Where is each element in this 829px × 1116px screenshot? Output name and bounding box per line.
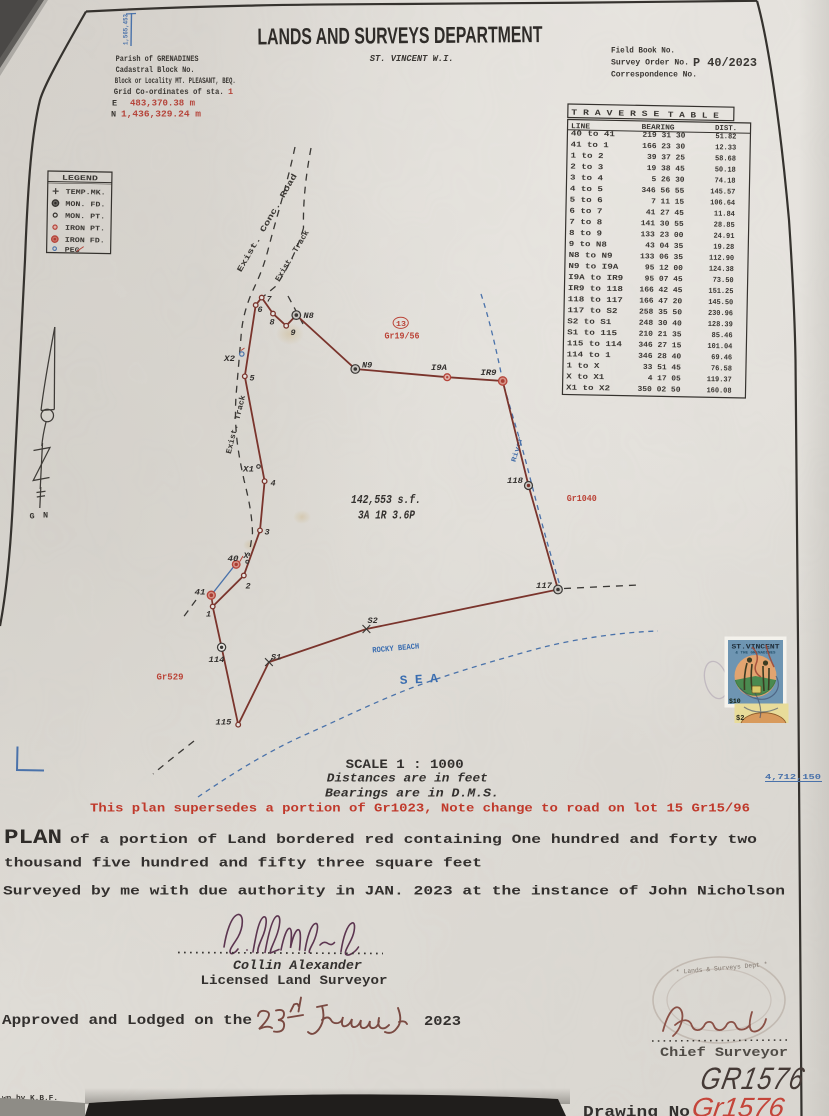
svg-text:SCALE 1 : 1000: SCALE 1 : 1000: [346, 757, 464, 772]
svg-text:74.18: 74.18: [714, 177, 736, 185]
svg-text:ST. VINCENT W.I.: ST. VINCENT W.I.: [370, 53, 454, 64]
svg-text:Distances are in feet: Distances are in feet: [327, 772, 488, 786]
svg-text:346 56 55: 346 56 55: [641, 187, 685, 196]
svg-text:9 to N8: 9 to N8: [569, 241, 608, 250]
svg-text:S1: S1: [271, 653, 281, 663]
svg-text:4,712,150: 4,712,150: [765, 774, 822, 782]
svg-text:119.37: 119.37: [707, 376, 732, 384]
svg-text:MON. FD.: MON. FD.: [65, 201, 105, 210]
svg-text:166 42 45: 166 42 45: [639, 286, 683, 295]
svg-text:350 02 50: 350 02 50: [637, 386, 681, 395]
svg-text:TEMP.MK.: TEMP.MK.: [66, 189, 106, 198]
svg-text:Block or Locality MT. PLEASANT: Block or Locality MT. PLEASANT, BEQ.: [115, 76, 236, 86]
svg-text:X1 to X2: X1 to X2: [566, 385, 611, 394]
svg-text:Gr529: Gr529: [157, 673, 184, 683]
svg-text:7 11 15: 7 11 15: [651, 198, 685, 207]
svg-text:Cadastral Block No.: Cadastral Block No.: [116, 65, 195, 75]
svg-text:PLAN: PLAN: [4, 827, 62, 850]
svg-text:69.46: 69.46: [711, 354, 733, 362]
svg-text:$2: $2: [736, 715, 744, 723]
svg-text:T A B L E: T A B L E: [668, 111, 719, 121]
svg-text:210 21 35: 210 21 35: [639, 331, 683, 340]
svg-text:2: 2: [246, 582, 251, 592]
svg-text:Licensed Land Surveyor: Licensed Land Surveyor: [201, 973, 388, 988]
svg-text:24.91: 24.91: [713, 233, 735, 241]
svg-text:5 to 6: 5 to 6: [570, 197, 604, 206]
svg-text:51.82: 51.82: [715, 133, 737, 141]
svg-text:114 to 1: 114 to 1: [567, 351, 612, 360]
svg-text:483,370.38 m: 483,370.38 m: [130, 99, 196, 109]
svg-text:19.28: 19.28: [713, 244, 735, 252]
svg-text:76.58: 76.58: [711, 365, 733, 373]
svg-text:43 04 35: 43 04 35: [645, 242, 684, 251]
svg-text:Gr1576: Gr1576: [690, 1092, 787, 1116]
svg-text:142,553 s.f.: 142,553 s.f.: [351, 494, 421, 507]
svg-text:346 27 15: 346 27 15: [638, 342, 682, 351]
svg-text:12.33: 12.33: [715, 144, 737, 152]
svg-text:Collin Alexander: Collin Alexander: [233, 958, 362, 973]
svg-text:19 38 45: 19 38 45: [647, 165, 686, 174]
svg-text:This plan supersedes a portion: This plan supersedes a portion of Gr1023…: [90, 802, 750, 816]
svg-text:33 51 45: 33 51 45: [643, 364, 682, 373]
svg-text:3: 3: [265, 528, 270, 538]
svg-text:6 to 7: 6 to 7: [569, 208, 602, 217]
svg-text:LANDS AND SURVEYS DEPARTMENT: LANDS AND SURVEYS DEPARTMENT: [257, 21, 542, 49]
svg-text:MON. PT.: MON. PT.: [65, 213, 105, 222]
svg-text:118: 118: [507, 476, 523, 486]
svg-text:248 30 40: 248 30 40: [639, 320, 683, 329]
svg-text:1,565,453: 1,565,453: [123, 14, 130, 45]
svg-text:230.96: 230.96: [708, 310, 734, 318]
svg-text:115: 115: [216, 718, 232, 728]
svg-text:9: 9: [291, 328, 296, 338]
svg-text:112.90: 112.90: [709, 255, 735, 263]
svg-text:41 to 1: 41 to 1: [571, 141, 610, 150]
svg-text:T R A V E R S E: T R A V E R S E: [571, 109, 659, 120]
svg-text:Bearings are in D.M.S.: Bearings are in D.M.S.: [325, 787, 499, 801]
svg-text:50.18: 50.18: [715, 166, 737, 174]
svg-text:N9: N9: [362, 361, 372, 371]
svg-text:8 to 9: 8 to 9: [569, 230, 603, 239]
svg-text:X1: X1: [242, 465, 254, 475]
svg-text:4 17 05: 4 17 05: [648, 375, 682, 384]
svg-text:ST.VINCENT: ST.VINCENT: [732, 644, 781, 651]
svg-text:95 12 00: 95 12 00: [645, 264, 684, 273]
svg-text:133 06 35: 133 06 35: [640, 253, 684, 262]
svg-text:Gr19/56: Gr19/56: [385, 332, 420, 342]
svg-text:2023: 2023: [424, 1014, 461, 1030]
svg-text:141 30 55: 141 30 55: [641, 220, 685, 229]
svg-text:N8 to N9: N8 to N9: [569, 252, 614, 261]
svg-text:117: 117: [536, 581, 553, 591]
svg-text:1,436,329.24 m: 1,436,329.24 m: [121, 110, 202, 120]
svg-text:N: N: [43, 511, 48, 521]
svg-text:128.39: 128.39: [708, 321, 734, 329]
svg-text:40: 40: [228, 554, 239, 564]
svg-text:3A 1R 3.6P: 3A 1R 3.6P: [358, 510, 415, 523]
svg-text:1: 1: [228, 87, 233, 97]
svg-text:IR9 to 118: IR9 to 118: [568, 285, 624, 294]
svg-text:39 37 25: 39 37 25: [647, 154, 686, 163]
svg-text:E: E: [112, 99, 117, 109]
svg-text:1 to X: 1 to X: [566, 362, 600, 371]
svg-text:thousand five hundred and fift: thousand five hundred and fifty three sq…: [4, 856, 482, 871]
svg-text:115 to 114: 115 to 114: [567, 340, 623, 349]
svg-text:LEGEND: LEGEND: [62, 175, 99, 184]
svg-text:S2: S2: [368, 616, 378, 626]
svg-text:117 to S2: 117 to S2: [567, 307, 618, 316]
svg-text:133 23 00: 133 23 00: [640, 231, 684, 240]
svg-text:X2: X2: [223, 354, 235, 364]
svg-text:S1 to 115: S1 to 115: [567, 329, 618, 338]
svg-text:X: X: [243, 551, 250, 561]
svg-text:IR9: IR9: [481, 368, 497, 378]
svg-text:101.04: 101.04: [707, 343, 733, 351]
svg-text:S2 to S1: S2 to S1: [567, 318, 612, 327]
svg-text:5 26 30: 5 26 30: [651, 176, 685, 185]
svg-text:124.38: 124.38: [709, 266, 735, 274]
svg-text:Parish of GRENADINES: Parish of GRENADINES: [116, 54, 199, 64]
svg-text:166 47 20: 166 47 20: [639, 298, 683, 307]
svg-text:346 28 40: 346 28 40: [638, 353, 682, 362]
svg-text:Survey Order No.: Survey Order No.: [611, 58, 689, 68]
svg-text:85.46: 85.46: [711, 332, 733, 340]
svg-text:41: 41: [195, 588, 206, 598]
svg-text:95 07 45: 95 07 45: [645, 276, 684, 285]
svg-text:41 27 45: 41 27 45: [646, 209, 685, 218]
svg-text:40 to 41: 40 to 41: [571, 130, 616, 139]
svg-text:Field Book No.: Field Book No.: [611, 46, 675, 56]
svg-text:IRON PT.: IRON PT.: [65, 225, 105, 234]
svg-text:Correspondence No.: Correspondence No.: [611, 70, 697, 80]
svg-text:11.84: 11.84: [714, 211, 736, 219]
svg-text:IRON FD.: IRON FD.: [65, 237, 105, 246]
svg-text:2 to 3: 2 to 3: [570, 164, 604, 173]
svg-text:P 40/2023: P 40/2023: [693, 56, 757, 70]
svg-text:118 to 117: 118 to 117: [568, 296, 623, 305]
svg-text:5: 5: [250, 374, 255, 384]
svg-text:1 to 2: 1 to 2: [570, 152, 604, 161]
svg-text:Gr1040: Gr1040: [567, 494, 597, 504]
svg-text:DIST.: DIST.: [715, 125, 737, 133]
svg-text:145.57: 145.57: [710, 188, 735, 196]
svg-text:145.50: 145.50: [708, 299, 734, 307]
svg-text:Chief Surveyor: Chief Surveyor: [660, 1045, 788, 1060]
svg-text:28.85: 28.85: [714, 222, 736, 230]
svg-text:160.08: 160.08: [706, 387, 732, 395]
svg-text:I9A to IR9: I9A to IR9: [568, 274, 624, 283]
svg-text:N: N: [111, 110, 116, 120]
svg-text:of a portion of Land bordered: of a portion of Land bordered red contai…: [70, 832, 757, 847]
svg-text:S E A: S E A: [399, 672, 438, 688]
svg-text:258 35 50: 258 35 50: [639, 309, 683, 318]
svg-text:114: 114: [209, 655, 225, 665]
svg-text:7 to 8: 7 to 8: [569, 219, 603, 228]
svg-text:73.50: 73.50: [713, 277, 735, 285]
svg-text:Surveyed by me with due author: Surveyed by me with due authority in JAN…: [3, 884, 785, 899]
svg-text:8: 8: [270, 318, 275, 328]
svg-text:166 23 30: 166 23 30: [642, 143, 686, 152]
svg-text:4 to 5: 4 to 5: [570, 186, 604, 195]
svg-text:X to X1: X to X1: [566, 373, 605, 382]
svg-text:G: G: [30, 512, 35, 522]
svg-text:6: 6: [258, 305, 263, 315]
svg-text:N8: N8: [304, 311, 314, 321]
svg-text:Approved and Lodged on the: Approved and Lodged on the: [2, 1013, 252, 1029]
svg-text:7: 7: [267, 295, 273, 305]
svg-text:3 to 4: 3 to 4: [570, 175, 604, 184]
svg-text:4: 4: [271, 479, 276, 489]
svg-text:58.68: 58.68: [715, 155, 737, 163]
svg-text:I9A: I9A: [431, 363, 447, 373]
svg-text:Drawing No: Drawing No: [583, 1104, 690, 1116]
svg-text:219 31 30: 219 31 30: [642, 132, 686, 141]
svg-text:N9 to I9A: N9 to I9A: [568, 263, 619, 272]
svg-text:1: 1: [206, 610, 211, 620]
svg-text:106.64: 106.64: [710, 199, 736, 207]
svg-text:151.25: 151.25: [708, 288, 734, 296]
svg-text:Grid Co-ordinates of sta.: Grid Co-ordinates of sta.: [114, 87, 224, 97]
